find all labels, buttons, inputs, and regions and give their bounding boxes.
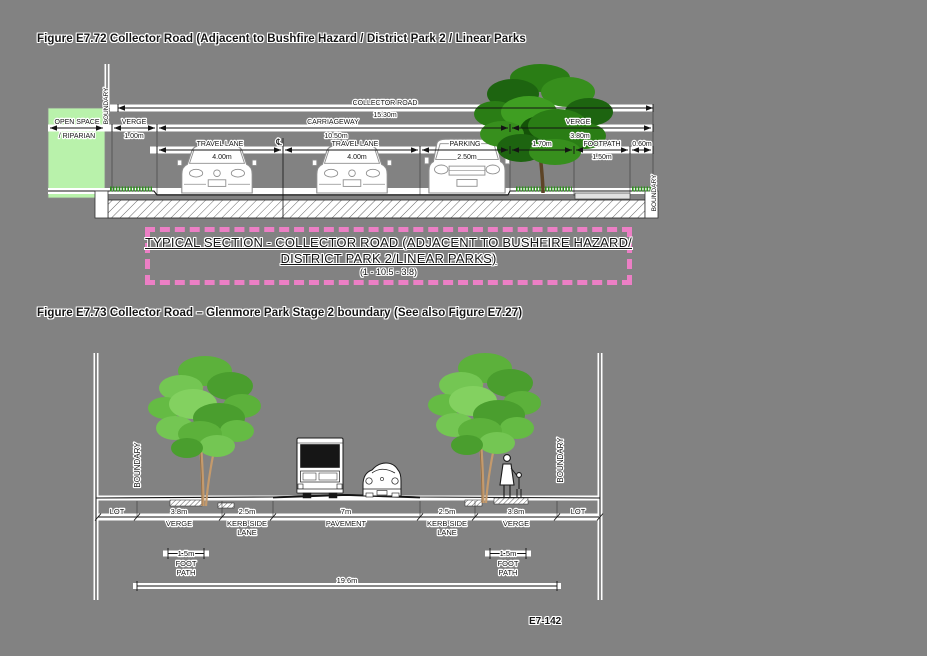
overall-dim-label: 19.6m [337,576,358,585]
footpath-right-dim: 1.5m [500,549,517,558]
boundary-left-label: BOUNDARY [103,87,110,124]
figure2-title: Figure E7.73 Collector Road – Glenmore P… [37,307,522,319]
footpath-right-label-1: FOOT [498,559,519,568]
travel-lane-1-dim: 4.00m [212,154,232,161]
figure2-diagram: BOUNDARY BOUNDARY LOT 3.8m VERGE 2.5m KE… [78,345,618,603]
footpath-dim: 1.50m [592,154,612,161]
boundary-right-label: BOUNDARY [651,174,658,211]
kerb-right-label-1: KERB SIDE [427,519,467,528]
kerb-left-dim: 2.5m [239,507,256,516]
kerb-right-label-2: LANE [437,528,457,537]
parking-label: PARKING [450,141,481,148]
figure1-caption-box: TYPICAL SECTION - COLLECTOR ROAD (ADJACE… [145,227,632,285]
collector-road-dim: 15.30m [373,112,397,119]
road-base-hatch [108,200,645,218]
footpath-left-label-2: PATH [177,568,196,577]
open-space-label-2: / RIPARIAN [59,133,95,140]
document-page: Figure E7.72 Collector Road (Adjacent to… [0,0,927,656]
pavement-dim: 7m [341,507,351,516]
figure1-title: Figure E7.72 Collector Road (Adjacent to… [37,33,526,45]
boundary-right-label-2: BOUNDARY [556,437,565,483]
lot-right-label: LOT [571,507,586,516]
verge-left-dim: 1.00m [124,133,144,140]
offset-dim: 1.70m [532,141,552,148]
caption-line-1: TYPICAL SECTION - COLLECTOR ROAD (ADJACE… [145,235,632,250]
page-number: E7-142 [529,616,561,627]
footpath-left-label-1: FOOT [176,559,197,568]
edge-dim: 0.60m [632,141,652,148]
verge-right-dim-2: 3.8m [508,507,525,516]
footpath-label: FOOTPATH [583,141,620,148]
lot-left-label: LOT [110,507,125,516]
kerb-left-label-1: KERB SIDE [227,519,267,528]
street-tree-right-icon [428,353,541,503]
verge-right-label-2: VERGE [503,519,529,528]
verge-right-label: VERGE [566,119,591,126]
kerb-right-dim: 2.5m [439,507,456,516]
travel-lane-1-label: TRAVEL LANE [197,141,244,148]
open-space-label-1: OPEN SPACE [55,119,100,126]
verge-left-label: VERGE [122,119,147,126]
verge-right-dim: 3.80m [570,133,590,140]
small-car-icon [363,463,401,497]
verge-left-label-2: VERGE [166,519,192,528]
boundary-left-label-2: BOUNDARY [133,442,142,488]
pedestrians-icon [500,455,521,497]
kerb-left-label-2: LANE [237,528,257,537]
street-tree-left-icon [148,356,261,506]
footpath-right-label-2: PATH [499,568,518,577]
bus-icon [297,438,343,498]
collector-road-label: COLLECTOR ROAD [353,100,418,107]
pavement-label: PAVEMENT [326,519,367,528]
caption-line-2: DISTRICT PARK 2/LINEAR PARKS) [280,251,496,266]
footpath-slab [575,193,630,199]
parking-dim: 2.50m [457,154,477,161]
travel-lane-2-dim: 4.00m [347,154,367,161]
kerb-block-left [95,191,108,218]
figure1-diagram: BOUNDARY BOUNDARY COLLECTOR ROAD 15.30m … [40,60,660,222]
travel-lane-2-label: TRAVEL LANE [332,141,379,148]
centerline-symbol: ℄ [275,137,282,147]
verge-left-dim-2: 3.8m [171,507,188,516]
carriageway-dim: 10.50m [324,133,348,140]
caption-line-3: (1 - 10.5 - 3.8) [360,267,417,277]
carriageway-label: CARRIAGEWAY [307,119,359,126]
footpath-left-dim: 1.5m [178,549,195,558]
